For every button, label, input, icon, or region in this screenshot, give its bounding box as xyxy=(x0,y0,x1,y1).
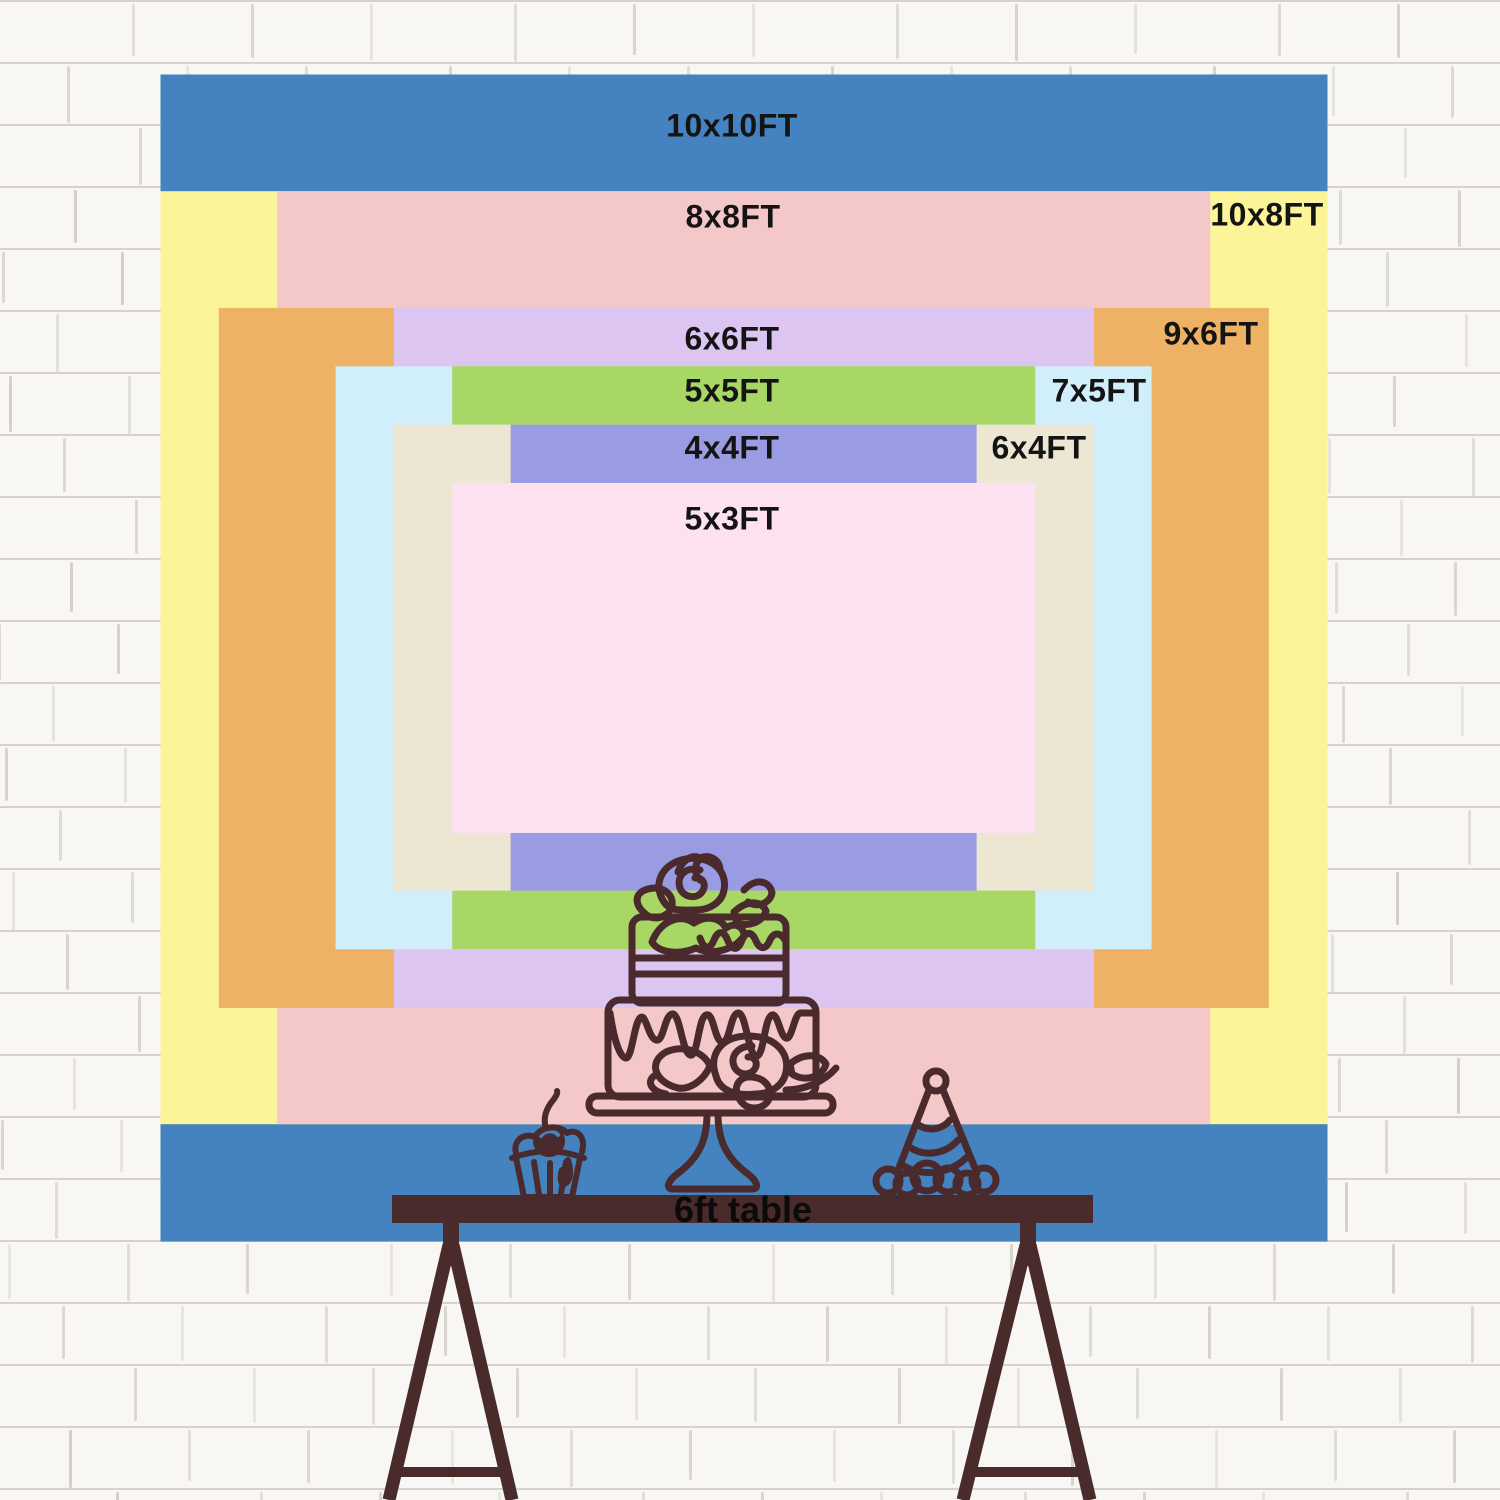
brick-joint xyxy=(1385,1120,1388,1174)
label-6x6ft: 6x6FT xyxy=(685,321,780,358)
brick-joint xyxy=(498,1492,501,1500)
brick-joint xyxy=(120,1120,123,1172)
brick-joint xyxy=(1453,1430,1456,1483)
brick-joint xyxy=(1458,190,1461,247)
label-4x4ft: 4x4FT xyxy=(685,430,780,467)
brick-joint xyxy=(1,1120,4,1170)
brick-joint xyxy=(128,376,131,434)
brick-joint xyxy=(1396,872,1399,925)
brick-joint xyxy=(59,810,62,861)
brick-joint xyxy=(307,1430,310,1483)
brick-joint xyxy=(1389,748,1392,805)
brick-joint xyxy=(116,1492,119,1500)
brick-joint xyxy=(1450,934,1453,985)
brick-joint xyxy=(761,1492,764,1500)
brick-joint xyxy=(127,1244,130,1301)
brick-joint xyxy=(1331,934,1334,992)
label-5x5ft: 5x5FT xyxy=(685,373,780,410)
brick-joint xyxy=(1457,1058,1460,1114)
brick-joint xyxy=(55,1182,58,1239)
brick-joint xyxy=(69,1430,72,1488)
label-10x8ft: 10x8FT xyxy=(1210,197,1323,234)
brick-joint xyxy=(63,438,66,492)
brick-joint xyxy=(12,872,15,930)
brick-joint xyxy=(379,1492,382,1500)
brick-joint xyxy=(117,624,120,674)
brick-joint xyxy=(898,1368,901,1424)
brick-joint xyxy=(1071,1430,1074,1486)
brick-joint xyxy=(9,376,12,432)
brick-joint xyxy=(1345,1182,1348,1232)
brick-joint xyxy=(1017,1368,1020,1426)
brick-joint xyxy=(1399,1368,1402,1423)
brick-joint xyxy=(1400,500,1403,556)
brick-joint xyxy=(188,1430,191,1481)
brick-joint xyxy=(1154,1244,1157,1299)
brick-joint xyxy=(1468,810,1471,865)
brick-joint xyxy=(1406,1492,1409,1500)
brick-joint xyxy=(1465,314,1468,367)
brick-joint xyxy=(1327,1306,1330,1361)
brick-joint xyxy=(563,1306,566,1358)
brick-joint xyxy=(1339,190,1342,245)
brick-joint xyxy=(628,1244,631,1300)
brick-joint xyxy=(1010,1244,1013,1297)
brick-joint xyxy=(1024,1492,1027,1500)
brick-joint xyxy=(1338,1058,1341,1112)
brick-joint xyxy=(1134,4,1137,54)
brick-joint xyxy=(1407,624,1410,676)
brick-joint xyxy=(132,4,135,56)
brick-joint xyxy=(1262,1492,1265,1500)
brick-joint xyxy=(754,1368,757,1422)
brick-joint xyxy=(67,66,70,123)
brick-joint xyxy=(1280,1368,1283,1421)
brick-joint xyxy=(0,624,1,681)
brick-joint xyxy=(1392,1244,1395,1294)
brick-joint xyxy=(5,748,8,801)
brick-joint xyxy=(689,1430,692,1480)
brick-joint xyxy=(1208,1306,1211,1359)
brick-joint xyxy=(1404,128,1407,178)
brick-joint xyxy=(444,1306,447,1356)
label-10x10ft: 10x10FT xyxy=(666,108,798,145)
brick-joint xyxy=(70,562,73,612)
brick-joint xyxy=(633,4,636,55)
brick-joint xyxy=(253,1368,256,1423)
brick-joint xyxy=(880,1492,883,1500)
brick-joint xyxy=(1334,1430,1337,1481)
brick-joint xyxy=(138,996,141,1052)
brick-joint xyxy=(56,314,59,372)
brick-joint xyxy=(891,1244,894,1295)
brick-joint xyxy=(74,190,77,243)
brick-joint xyxy=(1136,1368,1139,1419)
brick-joint xyxy=(952,1430,955,1484)
brick-joint xyxy=(514,4,517,62)
brick-joint xyxy=(2,252,5,303)
brick-joint xyxy=(181,1306,184,1361)
brick-joint xyxy=(707,1306,710,1360)
brick-joint xyxy=(1393,376,1396,427)
brick-joint xyxy=(52,686,55,741)
brick-joint xyxy=(1454,562,1457,616)
brick-joint xyxy=(260,1492,263,1500)
brick-joint xyxy=(1015,4,1018,61)
label-8x8ft: 8x8FT xyxy=(686,199,781,236)
brick-joint xyxy=(1328,438,1331,494)
brick-joint xyxy=(1403,996,1406,1054)
brick-joint xyxy=(516,1368,519,1418)
brick-joint xyxy=(896,4,899,59)
brick-joint xyxy=(62,1306,65,1359)
brick-joint xyxy=(945,1306,948,1364)
brick-joint xyxy=(246,1244,249,1294)
brick-joint xyxy=(370,4,373,60)
brick-joint xyxy=(509,1244,512,1298)
brick-joint xyxy=(325,1306,328,1363)
brick-joint xyxy=(390,1244,393,1296)
brick-joint xyxy=(1386,252,1389,307)
brick-joint xyxy=(833,1430,836,1482)
label-6x4ft: 6x4FT xyxy=(992,430,1087,467)
brick-joint xyxy=(451,1430,454,1485)
brick-joint xyxy=(1143,1492,1146,1500)
brick-joint xyxy=(66,934,69,990)
label-9x6ft: 9x6FT xyxy=(1164,316,1259,353)
brick-joint xyxy=(139,128,142,185)
brick-joint xyxy=(642,1492,645,1500)
table-size-label: 6ft table xyxy=(674,1189,812,1231)
brick-joint xyxy=(1461,686,1464,736)
brick-joint xyxy=(1089,1306,1092,1357)
brick-joint xyxy=(1332,66,1335,116)
brick-joint xyxy=(1472,438,1475,496)
brick-joint xyxy=(772,1244,775,1302)
brick-joint xyxy=(135,500,138,554)
brick-joint xyxy=(1335,562,1338,614)
brick-joint xyxy=(8,1244,11,1299)
brick-joint xyxy=(826,1306,829,1362)
backdrop-layers xyxy=(160,74,1327,1241)
brick-joint xyxy=(251,4,254,58)
brick-joint xyxy=(1471,1306,1474,1363)
brick-joint xyxy=(372,1368,375,1425)
brick-joint xyxy=(121,252,124,305)
brick-joint xyxy=(124,748,127,803)
label-5x3ft: 5x3FT xyxy=(685,501,780,538)
brick-joint xyxy=(1451,66,1454,118)
brick-joint xyxy=(1342,686,1345,743)
backdrop-size-chart: 6ft table 10x10FT10x8FT8x8FT9x6FT6x6FT7x… xyxy=(0,0,1500,1500)
brick-joint xyxy=(1464,1182,1467,1234)
brick-joint xyxy=(752,4,755,57)
brick-joint xyxy=(1278,4,1281,56)
brick-joint xyxy=(1397,4,1400,58)
brick-joint xyxy=(570,1430,573,1487)
brick-joint xyxy=(73,1058,76,1110)
brick-joint xyxy=(1273,1244,1276,1301)
brick-joint xyxy=(635,1368,638,1420)
label-7x5ft: 7x5FT xyxy=(1052,373,1147,410)
brick-joint xyxy=(131,872,134,923)
brick-joint xyxy=(134,1368,137,1421)
brick-joint xyxy=(1215,1430,1218,1488)
